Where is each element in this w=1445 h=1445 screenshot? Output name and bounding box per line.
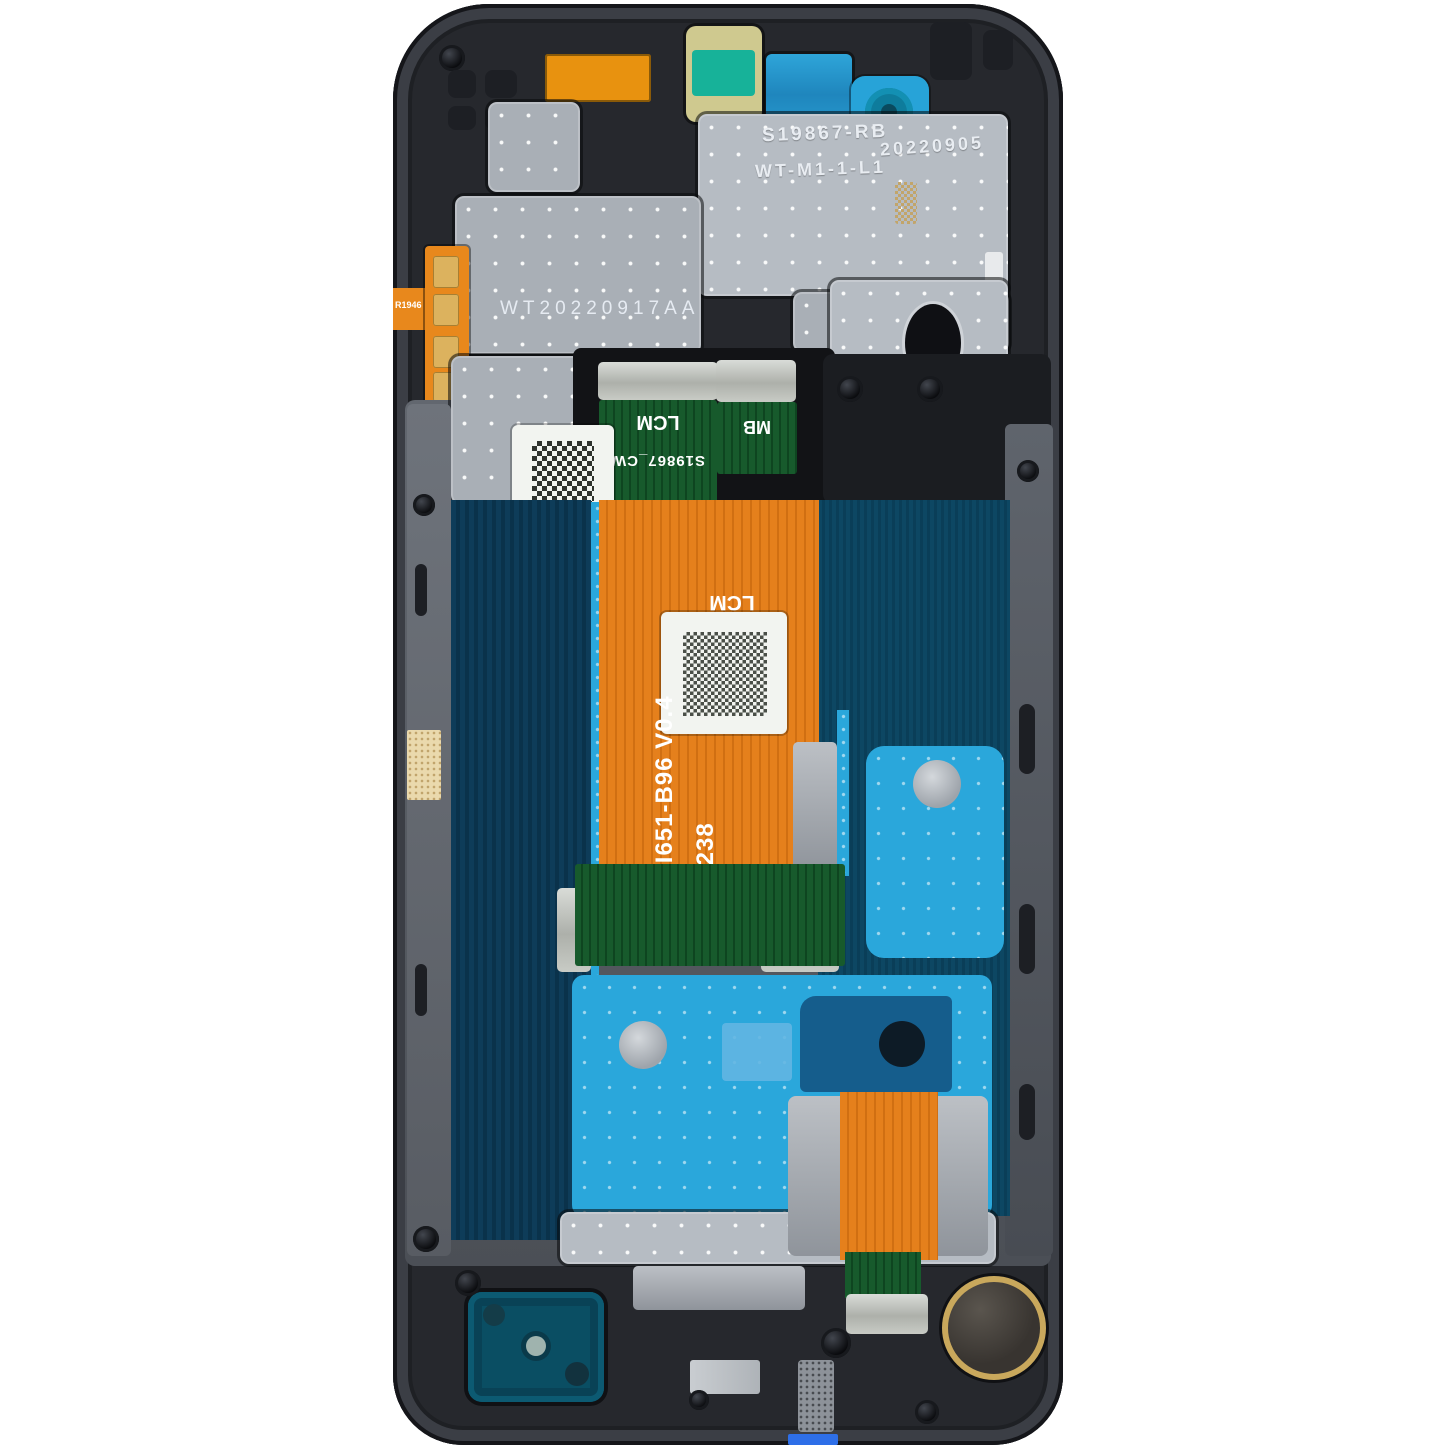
shield-plate-small [488,102,580,192]
side-key-contact-pad [433,294,459,326]
screw-hole [821,1328,851,1358]
screw-hole [413,494,435,516]
board-connector-flex [575,864,845,966]
antenna-contact-pads [545,54,651,102]
lcm-tail-label: LCM [599,410,717,433]
sub-flex-stiffener [846,1294,928,1334]
film-patch-light [722,1023,792,1081]
sub-flex-cable [840,1092,938,1260]
mb-connector-tail: MB [717,402,797,474]
bottom-blue-tab [788,1434,838,1445]
foam-pad [407,730,441,800]
screw-hole [455,1270,481,1296]
adhesive-block-dark [800,996,952,1092]
shield-marking-line1: S19867-RB [762,121,889,147]
flex-side-bracket [793,742,837,872]
screw-hole [413,1226,439,1252]
loudspeaker-corner-hole [483,1304,505,1326]
graphite-backsheet-panel [451,500,591,1240]
screw-hole [689,1390,709,1410]
frame-datamatrix-code [532,441,594,503]
phone-display-frame-assembly: S19867-RB WT-M1-1-L1 20220905 WT20220917… [393,4,1063,1445]
vibration-motor [942,1276,1046,1380]
side-key-flex-code: R1946 [395,300,422,310]
screw-hole [917,376,943,402]
product-photo-canvas: S19867-RB WT-M1-1-L1 20220905 WT20220917… [0,0,1445,1445]
bottom-bracket-plate [633,1266,805,1310]
lcm-connector-stiffener [598,362,718,400]
solder-speckle-patch [895,182,917,224]
rail-slot [415,564,427,616]
frame-cutout [930,22,972,80]
bottom-textured-patch [798,1360,834,1432]
loudspeaker-corner-hole [565,1362,589,1386]
screw-hole [1017,460,1039,482]
loudspeaker-center-post [526,1336,546,1356]
rail-slot [1019,904,1035,974]
rail-slot [1019,704,1035,774]
adhesive-rivet-silver [619,1021,667,1069]
adhesive-block-hole [879,1021,925,1067]
lcm-connector-tail: LCM S19867_CW [599,400,717,506]
frame-cutout [983,30,1013,70]
adhesive-strip-mid [837,710,849,876]
flex-datamatrix-code [683,632,767,716]
rail-slot [1019,1084,1035,1140]
screw-hole [837,376,863,402]
side-key-contact-pad [433,256,459,288]
etched-serial-code: WT20220917AA [500,298,699,320]
lcm-tail-part-number: S19867_CW [599,452,717,469]
earpiece-protective-sticker [692,50,755,96]
left-frame-rail [407,404,451,1256]
frame-cutout [448,106,476,130]
frame-cutout [448,70,476,98]
mb-connector-stiffener [716,360,796,402]
frame-cutout [485,70,517,98]
adhesive-rivet-silver [913,760,961,808]
bottom-shiny-patch [690,1360,760,1394]
mb-tail-label: MB [717,416,797,437]
sub-flex-connector [845,1252,921,1298]
screw-hole [439,45,465,71]
screw-hole [915,1400,939,1424]
shield-plate-left [455,196,701,354]
rail-slot [415,964,427,1016]
flex-lcm-marking: LCM [700,584,764,614]
